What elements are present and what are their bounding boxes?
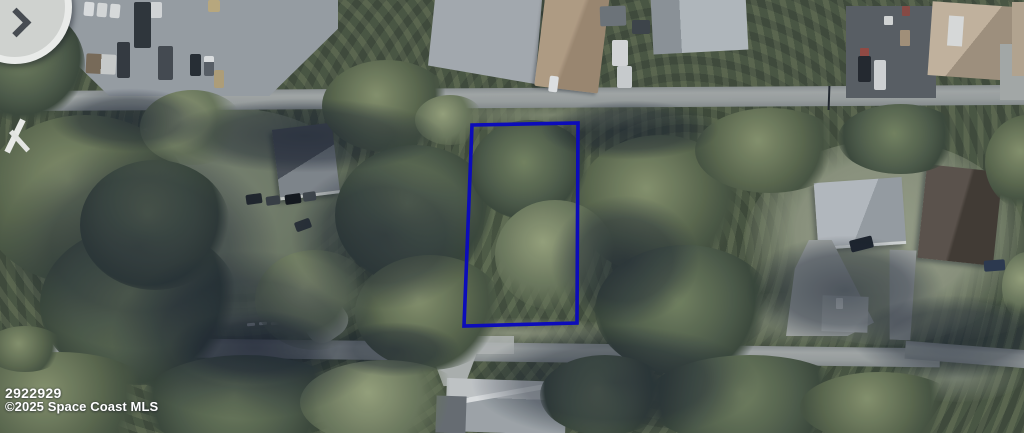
listing-id-text: 2922929 [5, 386, 158, 400]
aerial-photo: 2922929 ©2025 Space Coast MLS [0, 0, 1024, 433]
copyright-text: ©2025 Space Coast MLS [5, 400, 158, 414]
parcel-outline [0, 0, 1024, 433]
parcel-boundary-polygon [464, 123, 578, 326]
watermark: 2922929 ©2025 Space Coast MLS [5, 386, 158, 414]
